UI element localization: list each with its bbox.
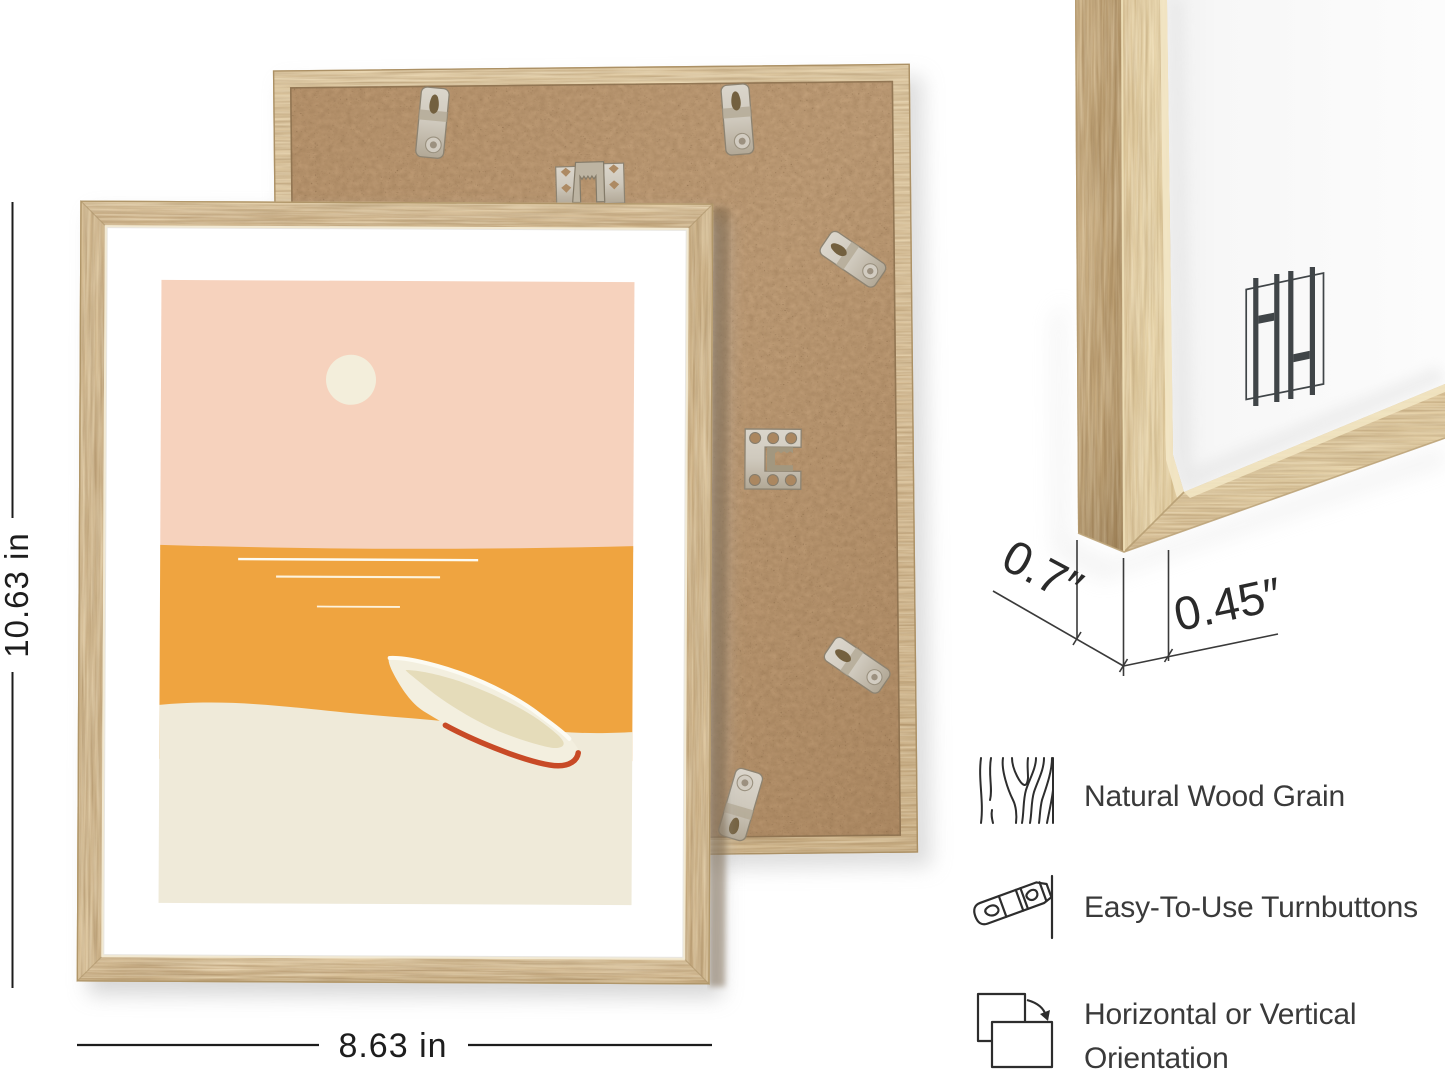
svg-text:Easy-To-Use Turnbuttons: Easy-To-Use Turnbuttons xyxy=(1084,891,1418,924)
svg-text:Natural Wood Grain: Natural Wood Grain xyxy=(1084,780,1345,813)
svg-text:Horizontal or Vertical: Horizontal or Vertical xyxy=(1084,998,1356,1031)
svg-text:Orientation: Orientation xyxy=(1084,1042,1229,1069)
svg-text:10.63 in: 10.63 in xyxy=(0,532,35,657)
svg-text:8.63 in: 8.63 in xyxy=(338,1027,447,1065)
